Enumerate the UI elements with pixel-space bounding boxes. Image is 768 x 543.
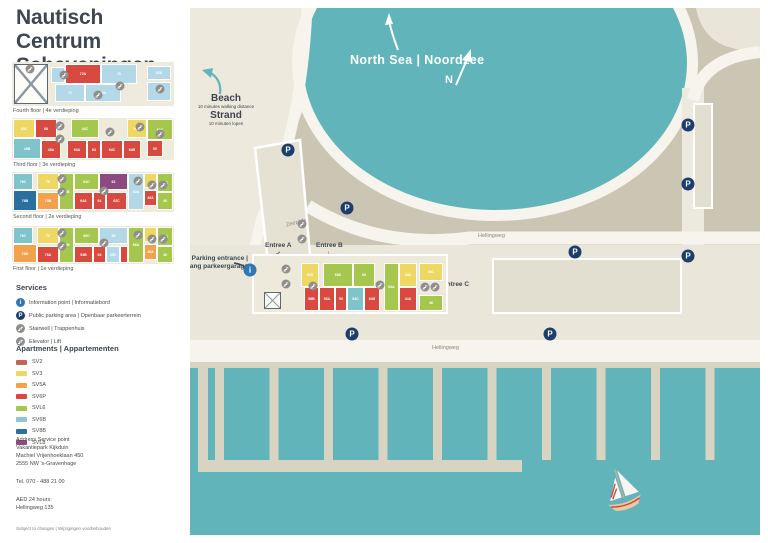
apartment-unit: 50 [148,141,162,156]
stairwell-icon [60,71,69,80]
apartment-unit: 44C [72,120,98,137]
apartments-legend: Apartments | Appartementen SV2SV3SV5ASV6… [16,344,119,451]
apartment-unit: 76C [14,174,32,189]
parking-icon: P [341,202,354,215]
stairwell-icon [94,91,103,100]
legend-swatch [16,394,27,399]
stairwell-icon [106,128,115,137]
aed-line: AED 24 hours: [16,496,83,504]
apartments-heading: Apartments | Appartementen [16,344,119,353]
beach-label: Beach 10 minutes walking distance Strand… [188,93,264,127]
parking-icon: P [544,328,557,341]
address-line: Machiel Vrijenhoeklaan 450 [16,452,83,460]
floor-plan: 76C7664B64C6262A44C76B78B64A6462C46A46 [12,172,174,212]
stairwell-icon [148,235,157,244]
entree-a-label: Entree A [265,242,292,249]
address-line: Address Service point [16,436,83,444]
stairwell-icon [282,265,291,274]
service-label: Stairwell | Trappenhuis [29,326,85,332]
apartment-unit: 64A [75,193,92,209]
service-item: Stairwell | Trappenhuis [16,324,141,333]
legend-item: SV2 [16,359,119,365]
apartment-unit: 45A [42,141,60,158]
apartment-unit: 54 [94,247,105,262]
legend-swatch [16,406,27,411]
stairwell-icon [282,280,291,289]
parking-icon: P [16,311,25,320]
info-icon: i [244,264,257,277]
parking-icon: P [682,178,695,191]
parking-icon: P [569,246,582,259]
stairwell-icon [159,235,168,244]
apartment-unit: 46A [145,191,156,205]
sidebar: Nautisch CentrumScheveningen 72A7002A727… [0,0,190,543]
apartment-unit: 64B [124,141,140,158]
stairwell-icon [26,65,35,74]
parking-icon: P [346,328,359,341]
title-line1: Nautisch Centrum [16,6,103,53]
service-item: iInformation point | Informatiebord [16,298,141,307]
stairwell-icon [56,122,65,131]
floor-plan-label: Fourth floor | 4e verdieping [13,108,79,114]
legend-code: SV8B [32,428,46,434]
legend-code: SV2 [32,359,42,365]
stairwell-icon [100,239,109,248]
compass-n: N [445,74,453,86]
phone-number: Tel. 070 - 488 21 00 [16,478,83,486]
stairwell-icon [431,283,440,292]
legend-item: SVL6 [16,405,119,411]
services-section: Services iInformation point | Informatie… [16,283,141,350]
services-heading: Services [16,283,141,292]
stairwell-icon [421,283,430,292]
service-label: Information point | Informatiebord [29,300,110,306]
legend-item: SV8B [16,428,119,434]
stairwell-icon [148,181,157,190]
beach-nl-sub: 10 minuten lopen [188,121,264,127]
legend-code: SVL6 [32,405,45,411]
legend-item: SV3 [16,371,119,377]
stairwell-icon [58,188,67,197]
apartment-unit: 54C [348,288,363,310]
entree-b-label: Entree B [316,242,343,249]
stairwell-icon [100,187,109,196]
apartment-unit: 46 [158,193,172,209]
apartment-unit: 66D [324,264,352,286]
parking-icon: P [282,144,295,157]
service-item: PPublic parking area | Openbaar parkeert… [16,311,141,320]
apartment-unit: 64B [365,288,379,310]
apartment-unit: 64 [88,141,100,158]
stairwell-icon [58,229,67,238]
legend-item: SV6B [16,417,119,423]
apartment-unit: 66C [75,228,98,243]
apartment-unit: 46 [420,296,442,310]
apartment-unit: 62C [107,193,126,209]
apartment-unit: 76 [38,228,58,243]
apartment-unit: 44D [400,264,416,286]
stairwell-icon [134,231,143,240]
legend-swatch [16,371,27,376]
apartment-unit: 76B [14,191,36,210]
stairwell-icon [376,281,385,290]
apartment-unit: 44A [400,288,416,310]
stairwell-icon [58,175,67,184]
floor-plan-label: Third floor | 3e verdieping [13,162,75,168]
stairwell-icon [136,123,145,132]
apartment-unit: 54B [75,247,92,262]
apartment-unit: 78A [38,247,58,262]
stairwell-icon [116,82,125,91]
stairwell-icon [298,220,307,229]
stairwell-icon [298,235,307,244]
apartment-unit: 56A [320,288,334,310]
stairwell-icon [56,135,65,144]
beach-nl: Strand [188,110,264,121]
apartment-unit: 46 [158,247,172,262]
east-building [492,258,682,314]
legend-item: SV6P [16,394,119,400]
floor-plan-label: Second floor | 2e verdieping [13,214,81,220]
beach-en: Beach [188,93,264,104]
apartment-unit: 68C [14,120,34,137]
aed-line: Hellingweg 135 [16,504,83,512]
legend-item: SV5A [16,382,119,388]
elevator-core-hatch [264,292,281,309]
info-icon: i [16,298,25,307]
stairwell-icon [58,242,67,251]
ground-floor-building: 64D66D6664A44D44C56B56A5654C64B44A46 [252,254,448,314]
apartment-unit: 56B [305,288,318,310]
address-line: Vakantiepark Kijkduin [16,444,83,452]
apartment-unit: 58C [107,247,119,262]
sea-label: North Sea | Noordzee [350,53,484,67]
apartment-unit: 72 [56,85,84,101]
legend-swatch [16,360,27,365]
stairs-icon [16,324,25,333]
site-map-poster: Nautisch CentrumScheveningen 72A7002A727… [0,0,768,543]
apartment-unit: 70 [102,65,136,83]
legend-code: SV5A [32,382,46,388]
apartment-unit: 68 [36,120,56,137]
apartment-unit: 72A [66,65,100,83]
street-hellingweg-lower: Hellingweg [432,345,459,351]
apartment-unit: 46A [145,245,156,259]
apartment-unit: 76C [14,228,32,243]
address-block: Address Service pointVakantiepark Kijkdu… [16,436,83,512]
legend-swatch [16,383,27,388]
apartment-unit: 44C [420,264,442,280]
address-line: 2555 NW 's-Gravenhage [16,460,83,468]
legend-swatch [16,417,27,422]
street-hellingweg-upper: Hellingweg [478,233,505,239]
service-label: Public parking area | Openbaar parkeerte… [29,313,141,319]
apartment-unit: 78B [14,245,36,262]
floor-plan: 76C7661B66C5866A44C78B78A54B5458C46A46 [12,226,174,264]
apartment-unit: 78B [38,193,58,209]
floor-plan: 68C6844C68A60C45B45A64A6464C64B50 [12,118,174,160]
apartment-unit: 76 [38,174,58,189]
stairwell-icon [156,130,165,139]
floor-plan: 72A7002A7270A02 [12,62,174,106]
apartment-unit: 64C [75,174,98,189]
legend-code: SV6B [32,417,46,423]
legend-code: SV6P [32,394,46,400]
legend-swatch [16,429,27,434]
stairwell-icon [309,282,318,291]
apartment-unit: 66 [354,264,374,286]
legend-code: SV3 [32,371,42,377]
apartment-unit: 64A [385,264,398,310]
disclaimer: Subject to changes | Wijzigingen voorbeh… [16,526,111,531]
apartment-unit [121,247,127,262]
parking-icon: P [682,119,695,132]
apartment-unit: 56 [336,288,346,310]
stairwell-icon [159,181,168,190]
apartment-unit: 02A [148,67,170,79]
parking-icon: P [682,250,695,263]
floor-plan-label: First floor | 1e verdieping [13,266,73,272]
stairwell-icon [134,177,143,186]
apartment-unit: 64A [68,141,86,158]
site-map: 64D66D6664A44D44C56B56A5654C64B44A46 Nor… [190,8,760,535]
stairwell-icon [156,85,165,94]
apartment-unit: 45B [14,139,40,158]
apartment-unit: 64C [102,141,122,158]
